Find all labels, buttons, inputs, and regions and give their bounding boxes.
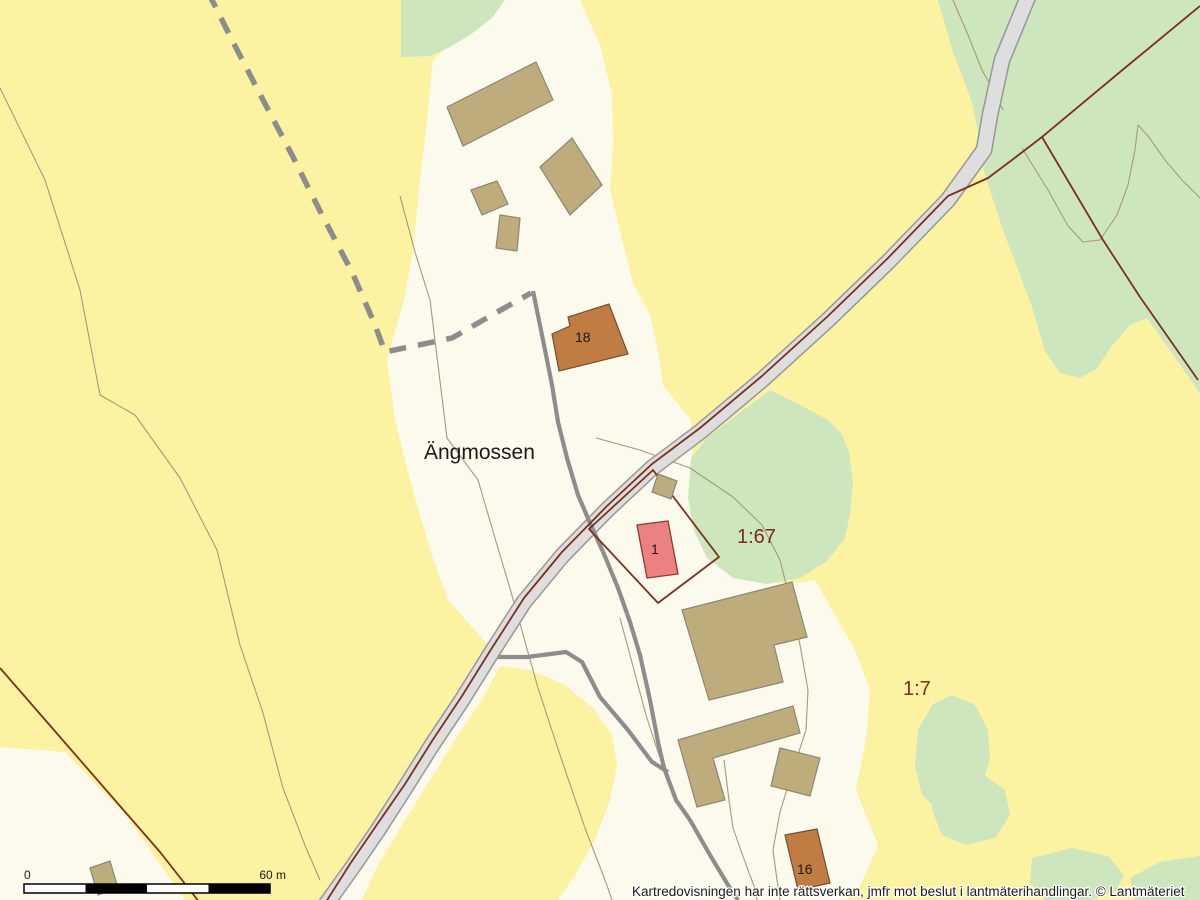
place-label-angmossen: Ängmossen <box>424 441 535 464</box>
building-label-16: 16 <box>797 861 813 877</box>
building-label-1: 1 <box>651 541 659 557</box>
scale-bar-max-label: 60 m <box>259 868 286 882</box>
cadastral-map-view[interactable]: Ängmossen 1:67 1:7 18 1 16 0 60 m Kartre… <box>0 0 1200 900</box>
building-outbuilding-c <box>496 215 520 251</box>
scale-bar-segment-dark-1 <box>86 884 148 893</box>
map-canvas[interactable]: Ängmossen 1:67 1:7 18 1 16 0 60 m Kartre… <box>0 0 1200 900</box>
parcel-label-1-7: 1:7 <box>903 678 931 700</box>
map-disclaimer-text: Kartredovisningen har inte rättsverkan, … <box>632 884 1185 899</box>
scale-bar-segment-dark-2 <box>209 884 271 893</box>
scale-bar-zero-label: 0 <box>24 868 31 882</box>
parcel-label-1-67: 1:67 <box>737 526 776 548</box>
building-label-18: 18 <box>575 329 591 345</box>
